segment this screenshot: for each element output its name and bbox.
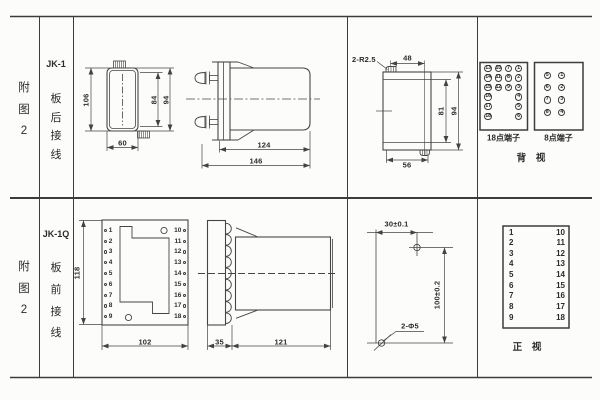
dim-118: 118 <box>72 266 81 279</box>
terminal-dot-icon <box>104 229 107 232</box>
terminal-empty-cell <box>505 93 512 100</box>
terminal-dot-icon <box>104 261 107 264</box>
list-item: 14 <box>159 268 186 279</box>
list-item: 7 <box>104 290 112 301</box>
terminal-circled-number: 18 <box>484 113 491 120</box>
terminal-number: 6 <box>109 281 113 288</box>
list-item: 5 <box>509 270 513 281</box>
dim-2-phi5: 2-Φ5 <box>401 322 419 331</box>
front-view-caption: 正 视 <box>513 339 542 353</box>
dim-146: 146 <box>249 156 262 165</box>
list-item: 2 <box>13 121 35 143</box>
list-item: 13 <box>539 259 565 270</box>
list-item: 13 <box>159 257 186 268</box>
terminal-number: 14 <box>174 270 181 277</box>
terminal-dot-icon <box>104 294 107 297</box>
terminal-number: 11 <box>174 238 181 245</box>
dim-60: 60 <box>118 138 127 147</box>
terminal-grid-18: 131071141182151293164175186 <box>483 64 524 122</box>
list-item: 11 <box>539 238 565 249</box>
terminal-circled-number: 7 <box>505 65 512 72</box>
terminal-circled-number: 10 <box>495 65 502 72</box>
dim-124: 124 <box>257 140 270 149</box>
terminal-dot-icon <box>183 240 186 243</box>
list-item: 接 <box>45 127 67 146</box>
terminal-dot-icon <box>104 272 107 275</box>
panel-terminals-right: 101112131415161718 <box>159 225 186 322</box>
list-item: 板 <box>45 258 67 280</box>
list-item: 前 <box>45 280 67 302</box>
terminal-number: 16 <box>174 292 181 299</box>
terminal-circled-number: 4 <box>515 93 522 100</box>
dim-56: 56 <box>403 160 412 169</box>
list-item: 15 <box>539 281 565 292</box>
jk1-front-view-drawing <box>85 61 174 151</box>
list-item: 7 <box>509 291 513 302</box>
list-item: 附 <box>13 78 35 100</box>
rear-view-caption: 背 视 <box>517 150 546 164</box>
list-item: 6 <box>104 279 112 290</box>
list-item: 8 <box>509 302 513 313</box>
list-item: 3 <box>509 249 513 260</box>
list-item: 11 <box>159 236 186 247</box>
terminal-circled-number: 2 <box>515 74 522 81</box>
list-item: 18 <box>539 313 565 324</box>
terminal-dot-icon <box>104 304 107 307</box>
terminal-dot-icon <box>183 294 186 297</box>
list-item: 16 <box>159 290 186 301</box>
list-item: 17 <box>539 302 565 313</box>
terminal-circled-number: 13 <box>484 65 491 72</box>
terminal-circled-number: 6 <box>544 84 551 91</box>
terminal-empty-cell <box>495 103 502 110</box>
terminal-dot-icon <box>183 304 186 307</box>
list-item: 12 <box>159 247 186 258</box>
terminal-circled-number: 8 <box>544 109 551 116</box>
relay-installation-figure-sheet: 附图2 JK-1 板后接线 附图2 JK-1Q 板前接线 106 84 94 6… <box>0 0 600 400</box>
dim-48: 48 <box>403 54 412 63</box>
list-item: 18 <box>159 311 186 322</box>
list-item: 16 <box>539 291 565 302</box>
list-item: 15 <box>159 279 186 290</box>
terminal-number: 13 <box>174 259 181 266</box>
list-item: 1 <box>509 228 513 239</box>
dim-81: 81 <box>436 107 445 116</box>
list-item: 9 <box>509 313 513 324</box>
terminal-number: 18 <box>174 313 181 320</box>
list-item: 9 <box>104 311 112 322</box>
terminal-dot-icon <box>183 261 186 264</box>
terminal-dot-icon <box>183 229 186 232</box>
table-terminals-left: 123456789 <box>509 228 513 324</box>
terminal-dot-icon <box>183 272 186 275</box>
list-item: 14 <box>539 270 565 281</box>
list-item: 1 <box>104 225 112 236</box>
terminal-circled-number: 9 <box>505 84 512 91</box>
terminal8-title: 8点端子 <box>544 132 572 143</box>
terminal-number: 2 <box>109 238 113 245</box>
terminal-dot-icon <box>104 250 107 253</box>
terminal-number: 7 <box>109 292 113 299</box>
table-terminals-right: 101112131415161718 <box>539 228 565 324</box>
list-item: 4 <box>104 257 112 268</box>
list-item: 3 <box>104 247 112 258</box>
terminal-dot-icon <box>183 315 186 318</box>
list-item: 2 <box>104 236 112 247</box>
terminal-number: 5 <box>109 270 113 277</box>
dim-121: 121 <box>274 337 287 346</box>
dim-106: 106 <box>81 93 90 106</box>
jk1q-side-view-drawing <box>198 221 335 351</box>
dim-2-r2-5: 2-R2.5 <box>352 55 376 64</box>
figure-label-row1: 附图2 <box>13 78 35 143</box>
terminal-circled-number: 2 <box>558 84 565 91</box>
terminal-grid-8: 51627384 <box>540 69 569 119</box>
list-item: 10 <box>159 225 186 236</box>
dim-102: 102 <box>138 337 151 346</box>
list-item: 2 <box>13 300 35 322</box>
terminal-circled-number: 1 <box>558 72 565 79</box>
terminal-number: 3 <box>109 248 113 255</box>
terminal-circled-number: 1 <box>515 65 522 72</box>
model-label-jk1q: JK-1Q <box>40 229 72 239</box>
line-art <box>0 0 600 400</box>
jk1-side-view-drawing <box>186 62 320 169</box>
terminal-dot-icon <box>104 283 107 286</box>
list-item: 后 <box>45 109 67 128</box>
list-item: 17 <box>159 301 186 312</box>
wiring-label-row2: 板前接线 <box>45 258 67 345</box>
terminal-empty-cell <box>505 103 512 110</box>
terminal-dot-icon <box>183 283 186 286</box>
terminal-dot-icon <box>104 315 107 318</box>
terminal-circled-number: 4 <box>558 109 565 116</box>
terminal-dot-icon <box>104 240 107 243</box>
terminal-circled-number: 5 <box>515 103 522 110</box>
terminal-circled-number: 12 <box>495 84 502 91</box>
dim-30: 30±0.1 <box>384 220 408 229</box>
list-item: 线 <box>45 146 67 165</box>
terminal-number: 1 <box>109 227 113 234</box>
list-item: 接 <box>45 302 67 324</box>
list-item: 10 <box>539 228 565 239</box>
terminal-circled-number: 6 <box>515 113 522 120</box>
terminal-circled-number: 17 <box>484 103 491 110</box>
list-item: 5 <box>104 268 112 279</box>
terminal-circled-number: 3 <box>558 96 565 103</box>
dim-35: 35 <box>215 337 224 346</box>
terminal-circled-number: 16 <box>484 93 491 100</box>
dim-94-rear: 94 <box>449 107 458 116</box>
list-item: 线 <box>45 323 67 345</box>
model-label-jk1: JK-1 <box>42 59 70 69</box>
list-item: 板 <box>45 90 67 109</box>
list-item: 图 <box>13 100 35 122</box>
wiring-label-row1: 板后接线 <box>45 90 67 164</box>
dim-84: 84 <box>149 95 158 104</box>
terminal-dot-icon <box>183 250 186 253</box>
list-item: 图 <box>13 279 35 301</box>
terminal-circled-number: 14 <box>484 74 491 81</box>
terminal-empty-cell <box>495 93 502 100</box>
terminal-number: 17 <box>174 302 181 309</box>
terminal-empty-cell <box>505 113 512 120</box>
terminal-number: 9 <box>109 313 113 320</box>
terminal-circled-number: 8 <box>505 74 512 81</box>
dim-94-front: 94 <box>162 95 171 104</box>
list-item: 附 <box>13 257 35 279</box>
terminal-circled-number: 11 <box>495 74 502 81</box>
terminal-number: 10 <box>174 227 181 234</box>
panel-terminals-left: 123456789 <box>104 225 112 322</box>
terminal-number: 4 <box>109 259 113 266</box>
terminal-number: 12 <box>174 248 181 255</box>
terminal-number: 15 <box>174 281 181 288</box>
list-item: 4 <box>509 259 513 270</box>
terminal-circled-number: 3 <box>515 84 522 91</box>
terminal-circled-number: 15 <box>484 84 491 91</box>
figure-label-row2: 附图2 <box>13 257 35 322</box>
terminal-circled-number: 7 <box>544 96 551 103</box>
list-item: 12 <box>539 249 565 260</box>
terminal-number: 8 <box>109 302 113 309</box>
list-item: 2 <box>509 238 513 249</box>
list-item: 6 <box>509 281 513 292</box>
terminal18-title: 18点端子 <box>487 132 520 143</box>
terminal-circled-number: 5 <box>544 72 551 79</box>
terminal-empty-cell <box>495 113 502 120</box>
list-item: 8 <box>104 301 112 312</box>
dim-100: 100±0.2 <box>433 281 442 309</box>
